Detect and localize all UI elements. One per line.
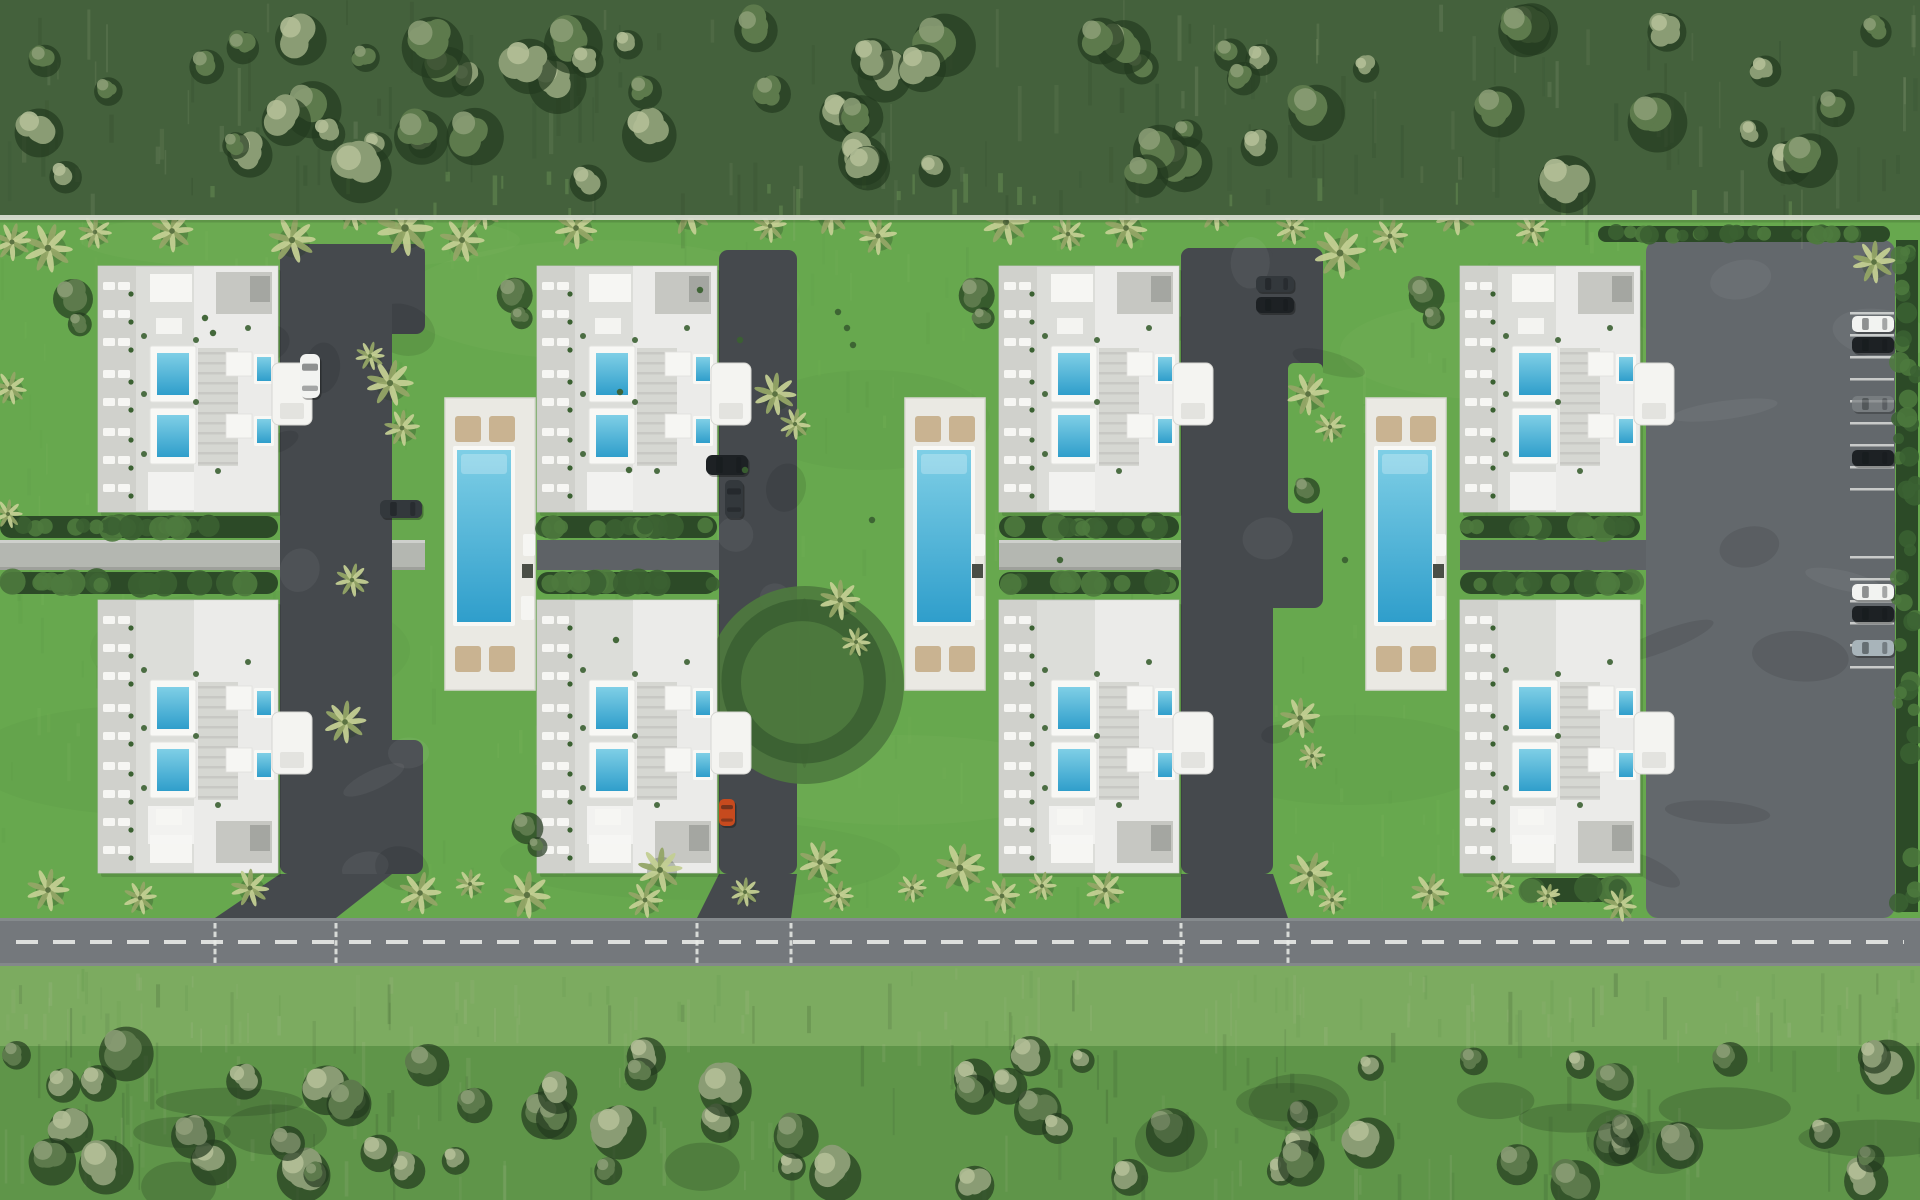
lounger	[557, 762, 569, 770]
rooftop-plunge-pool	[1058, 749, 1090, 791]
rooftop-plunge-pool	[1058, 415, 1090, 457]
cabana	[665, 414, 691, 438]
lounger	[1019, 484, 1031, 492]
lounger	[1465, 732, 1477, 740]
lounger	[557, 484, 569, 492]
cabana	[1127, 686, 1153, 710]
lounger	[118, 732, 130, 740]
crossing-mark	[790, 923, 793, 929]
car	[1852, 337, 1896, 355]
lounger	[1019, 428, 1031, 436]
rooftop-plunge-pool-small	[1158, 419, 1172, 443]
lounger	[1480, 818, 1492, 826]
stall-line	[1850, 578, 1894, 581]
crossing-mark	[214, 957, 217, 963]
lounger	[557, 428, 569, 436]
lounger	[1480, 732, 1492, 740]
stall-line	[1850, 666, 1894, 669]
sun-lounger-pad	[949, 646, 975, 672]
rooftop-plunge-pool-small	[696, 753, 710, 777]
lap-pool-water	[457, 450, 511, 622]
lounger	[1465, 644, 1477, 652]
shrub	[617, 389, 623, 395]
car	[1852, 606, 1896, 624]
building-2-bottom	[537, 600, 751, 877]
cabana	[1588, 686, 1614, 710]
crossing-mark	[790, 932, 793, 938]
lounger	[542, 762, 554, 770]
rooftop-plunge-pool	[1058, 353, 1090, 395]
car	[300, 354, 322, 400]
rooftop-plunge-pool	[157, 353, 189, 395]
lounger	[1480, 704, 1492, 712]
lounger	[103, 398, 115, 406]
building-4-top	[1460, 266, 1674, 516]
shrub	[210, 330, 216, 336]
building-1-top	[98, 266, 312, 516]
car	[725, 480, 745, 520]
car	[1852, 640, 1896, 658]
rooftop-plunge-pool-small	[696, 357, 710, 381]
rooftop-plunge-pool-small	[257, 691, 271, 715]
lounger	[542, 818, 554, 826]
rooftop-plunge-pool	[1519, 749, 1551, 791]
lounger	[1019, 732, 1031, 740]
lounger	[1019, 818, 1031, 826]
crossing-mark	[335, 932, 338, 938]
rooftop-plunge-pool-small	[257, 357, 271, 381]
lounger	[1004, 644, 1016, 652]
crossing-mark	[335, 957, 338, 963]
crossing-mark	[1287, 949, 1290, 955]
lounger	[542, 616, 554, 624]
lap-pool-water	[917, 450, 971, 622]
lounger	[1019, 762, 1031, 770]
lounger	[1480, 484, 1492, 492]
sun-lounger-pad	[489, 416, 515, 442]
lounger	[542, 484, 554, 492]
car	[1852, 316, 1896, 334]
lounger	[542, 732, 554, 740]
lounger	[557, 790, 569, 798]
lounger	[1480, 282, 1492, 290]
lounger	[103, 370, 115, 378]
lounger	[118, 644, 130, 652]
crossing-mark	[214, 940, 217, 946]
lounger	[1019, 790, 1031, 798]
rooftop-plunge-pool-small	[1158, 357, 1172, 381]
lounger	[557, 846, 569, 854]
lounger	[557, 456, 569, 464]
lounger	[118, 428, 130, 436]
car	[1852, 396, 1896, 414]
cabana	[226, 748, 252, 772]
lounger	[1465, 616, 1477, 624]
lounger	[103, 428, 115, 436]
crossing-mark	[1180, 957, 1183, 963]
communal-pool-3	[905, 398, 985, 690]
rooftop-plunge-pool-small	[1619, 691, 1633, 715]
lounger	[103, 338, 115, 346]
shrub	[1342, 557, 1348, 563]
stall-line	[1850, 356, 1894, 359]
lounger	[118, 398, 130, 406]
lounger	[1465, 310, 1477, 318]
sun-lounger-pad	[489, 646, 515, 672]
shrub	[697, 287, 703, 293]
building-4-bottom	[1460, 600, 1674, 877]
lounger	[557, 732, 569, 740]
stall-line	[1850, 488, 1894, 491]
shrub	[850, 342, 856, 348]
lounger	[1465, 282, 1477, 290]
lounger	[1465, 790, 1477, 798]
crossing-mark	[696, 949, 699, 955]
rooftop-plunge-pool-small	[1158, 753, 1172, 777]
crossing-mark	[335, 940, 338, 946]
stall-line	[1850, 312, 1894, 315]
cabana	[665, 748, 691, 772]
stall-line	[1850, 422, 1894, 425]
lounger	[557, 672, 569, 680]
lounger	[557, 338, 569, 346]
rooftop-plunge-pool-small	[1158, 691, 1172, 715]
rooftop-plunge-pool	[1058, 687, 1090, 729]
crossing-mark	[696, 940, 699, 946]
lounger	[1480, 428, 1492, 436]
lounger	[1465, 818, 1477, 826]
parking-areas	[215, 235, 1368, 918]
stall-line	[1850, 334, 1894, 337]
lounger	[1004, 398, 1016, 406]
lounger	[1004, 732, 1016, 740]
driveway-module-3	[1181, 874, 1288, 918]
cabana	[226, 414, 252, 438]
lounger	[542, 282, 554, 290]
cabana	[226, 686, 252, 710]
stall-line	[1850, 378, 1894, 381]
lounger	[1004, 704, 1016, 712]
rooftop-plunge-pool	[157, 415, 189, 457]
lounger	[557, 704, 569, 712]
lounger	[103, 762, 115, 770]
lounger	[1465, 338, 1477, 346]
pergola	[1512, 274, 1554, 302]
cabana	[1588, 352, 1614, 376]
communal-pool-4	[1366, 398, 1446, 690]
lounger	[118, 370, 130, 378]
car	[1256, 297, 1296, 315]
car	[706, 455, 750, 477]
lounger	[1019, 398, 1031, 406]
lounger	[542, 338, 554, 346]
lounger	[103, 282, 115, 290]
lounger	[542, 644, 554, 652]
lounger	[1465, 370, 1477, 378]
car	[1852, 584, 1896, 602]
lounger	[1465, 484, 1477, 492]
pergola	[150, 274, 192, 302]
lounger	[542, 790, 554, 798]
lounger	[557, 818, 569, 826]
shrub	[202, 315, 208, 321]
rooftop-plunge-pool	[157, 687, 189, 729]
cabana	[665, 686, 691, 710]
crossing-mark	[790, 949, 793, 955]
lounger	[118, 672, 130, 680]
lounger	[1004, 790, 1016, 798]
lounger	[103, 484, 115, 492]
lounger	[542, 672, 554, 680]
crossing-mark	[790, 957, 793, 963]
cabana	[226, 352, 252, 376]
lounger	[1465, 428, 1477, 436]
forest-top	[0, 0, 1920, 249]
lounger	[103, 672, 115, 680]
lounger	[118, 616, 130, 624]
lounger	[1480, 790, 1492, 798]
rooftop-plunge-pool	[1519, 687, 1551, 729]
shrub	[742, 467, 748, 473]
communal-pool-2	[445, 398, 535, 690]
sun-lounger-pad	[455, 646, 481, 672]
lounger	[1480, 310, 1492, 318]
building-3-bottom	[999, 600, 1213, 877]
lounger	[557, 616, 569, 624]
lounger	[1465, 398, 1477, 406]
lounger	[103, 644, 115, 652]
lounger	[118, 456, 130, 464]
crossing-mark	[1287, 923, 1290, 929]
lounger	[1465, 762, 1477, 770]
lounger	[103, 456, 115, 464]
crossing-mark	[1287, 957, 1290, 963]
lounger	[118, 704, 130, 712]
lounger	[118, 338, 130, 346]
lounger	[1004, 616, 1016, 624]
rooftop-plunge-pool	[596, 353, 628, 395]
shrub	[835, 309, 841, 315]
lounger	[1004, 818, 1016, 826]
crossing-mark	[1180, 940, 1183, 946]
lounger	[1019, 644, 1031, 652]
shrub	[844, 325, 850, 331]
rooftop-plunge-pool	[157, 749, 189, 791]
rooftop-plunge-pool	[596, 415, 628, 457]
rooftop-plunge-pool-small	[1619, 419, 1633, 443]
sun-lounger-pad	[915, 416, 941, 442]
lounger	[1019, 672, 1031, 680]
lounger	[557, 310, 569, 318]
lounger	[118, 282, 130, 290]
lounger	[1004, 846, 1016, 854]
rooftop-plunge-pool	[1519, 353, 1551, 395]
sun-lounger-pad	[949, 416, 975, 442]
crossing-mark	[214, 949, 217, 955]
lounger	[118, 818, 130, 826]
lounger	[557, 282, 569, 290]
car	[1852, 450, 1896, 468]
lounger	[103, 846, 115, 854]
lounger	[1019, 370, 1031, 378]
lounger	[1019, 846, 1031, 854]
lounger	[542, 456, 554, 464]
lounger	[103, 818, 115, 826]
aerial-view-svg	[0, 0, 1920, 1200]
lounger	[557, 644, 569, 652]
lounger	[118, 310, 130, 318]
lounger	[1019, 282, 1031, 290]
lounger	[542, 428, 554, 436]
shrub	[737, 337, 743, 343]
shrub	[613, 637, 619, 643]
crossing-mark	[696, 957, 699, 963]
lounger	[1004, 762, 1016, 770]
site-plan-render	[0, 0, 1920, 1200]
lounger	[103, 704, 115, 712]
lounger	[103, 310, 115, 318]
rooftop-plunge-pool	[596, 749, 628, 791]
lounger	[1004, 310, 1016, 318]
lounger	[557, 398, 569, 406]
lounger	[103, 616, 115, 624]
lounger	[1004, 282, 1016, 290]
lounger	[1019, 310, 1031, 318]
rooftop-plunge-pool-small	[257, 753, 271, 777]
lounger	[1480, 762, 1492, 770]
lounger	[1004, 484, 1016, 492]
lounger	[1465, 672, 1477, 680]
lounger	[1019, 456, 1031, 464]
lounger	[1019, 338, 1031, 346]
stall-line	[1850, 556, 1894, 559]
lounger	[1004, 672, 1016, 680]
sun-lounger-pad	[1410, 416, 1436, 442]
parking-strip-3	[1181, 248, 1273, 874]
rooftop-plunge-pool-small	[1619, 753, 1633, 777]
lounger	[1465, 846, 1477, 854]
shrub	[626, 467, 632, 473]
cabana	[665, 352, 691, 376]
lounger	[103, 732, 115, 740]
lounger	[1004, 456, 1016, 464]
sun-lounger-pad	[1376, 416, 1402, 442]
crossing-mark	[1287, 940, 1290, 946]
cabana	[1588, 748, 1614, 772]
car	[1256, 276, 1296, 294]
lounger	[1019, 616, 1031, 624]
crossing-mark	[1180, 923, 1183, 929]
lounger	[1480, 398, 1492, 406]
lounger	[118, 484, 130, 492]
rooftop-plunge-pool	[1519, 415, 1551, 457]
building-1-bottom	[98, 600, 312, 877]
car	[719, 799, 737, 828]
crossing-mark	[790, 940, 793, 946]
lounger	[1480, 456, 1492, 464]
lounger	[1480, 370, 1492, 378]
lounger	[542, 370, 554, 378]
road	[0, 918, 1920, 966]
rooftop-plunge-pool-small	[1619, 357, 1633, 381]
crossing-mark	[1180, 949, 1183, 955]
lounger	[542, 398, 554, 406]
pergola	[1051, 274, 1093, 302]
lounger	[1480, 616, 1492, 624]
shrub	[1057, 557, 1063, 563]
lounger	[1480, 846, 1492, 854]
cabana	[1127, 414, 1153, 438]
lounger	[542, 704, 554, 712]
lounger	[1004, 428, 1016, 436]
lounger	[118, 762, 130, 770]
building-3-top	[999, 266, 1213, 516]
lounger	[542, 310, 554, 318]
crossing-mark	[696, 932, 699, 938]
sun-lounger-pad	[1410, 646, 1436, 672]
lounger	[1480, 644, 1492, 652]
lounger	[118, 846, 130, 854]
lounger	[1019, 704, 1031, 712]
rooftop-plunge-pool-small	[696, 691, 710, 715]
boundary-road-line	[0, 215, 1920, 223]
lounger	[1465, 704, 1477, 712]
crossing-mark	[335, 949, 338, 955]
shrub	[869, 517, 875, 523]
lounger	[1004, 338, 1016, 346]
lounger	[1480, 672, 1492, 680]
cabana	[1127, 748, 1153, 772]
sun-lounger-pad	[1376, 646, 1402, 672]
crossing-mark	[1180, 932, 1183, 938]
crossing-mark	[214, 923, 217, 929]
lounger	[557, 370, 569, 378]
sun-lounger-pad	[915, 646, 941, 672]
lounger	[1480, 338, 1492, 346]
pergola	[589, 274, 631, 302]
lounger	[1004, 370, 1016, 378]
cabana	[1127, 352, 1153, 376]
lounger	[1465, 456, 1477, 464]
crossing-mark	[335, 923, 338, 929]
south-grass-strip	[0, 966, 1920, 1063]
crossing-mark	[1287, 932, 1290, 938]
rooftop-plunge-pool-small	[257, 419, 271, 443]
crossing-mark	[214, 932, 217, 938]
lounger	[103, 790, 115, 798]
crossing-mark	[696, 923, 699, 929]
lap-pool-water	[1378, 450, 1432, 622]
building-2-top	[537, 266, 751, 516]
cabana	[1588, 414, 1614, 438]
sun-lounger-pad	[455, 416, 481, 442]
car	[380, 500, 424, 520]
rooftop-plunge-pool-small	[696, 419, 710, 443]
lounger	[118, 790, 130, 798]
rooftop-plunge-pool	[596, 687, 628, 729]
stall-line	[1850, 444, 1894, 447]
